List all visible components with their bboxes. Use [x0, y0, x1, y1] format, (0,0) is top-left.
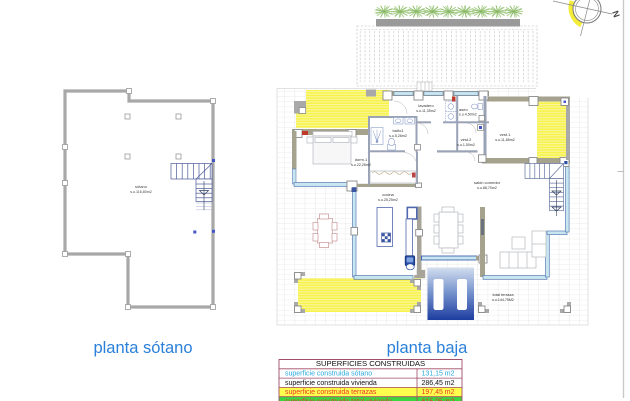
svg-text:superficie construida terrazas: superficie construida terrazas	[285, 389, 377, 396]
svg-text:total terraza: total terraza	[492, 292, 514, 297]
svg-text:s.u.1,50m2: s.u.1,50m2	[457, 143, 475, 147]
svg-text:baño1: baño1	[392, 128, 404, 133]
svg-text:s.u.4,50m2: s.u.4,50m2	[459, 113, 477, 117]
svg-text:planta sótano: planta sótano	[93, 339, 192, 357]
svg-text:sótano: sótano	[135, 184, 148, 189]
svg-text:197,45 m2: 197,45 m2	[421, 389, 454, 396]
svg-text:s.u.22,26m2: s.u.22,26m2	[351, 163, 371, 167]
svg-text:SUPERFICIES CONSTRUIDAS: SUPERFICIES CONSTRUIDAS	[316, 359, 425, 368]
svg-text:vest.1: vest.1	[500, 132, 511, 137]
svg-text:cocina: cocina	[382, 192, 394, 197]
svg-text:s.u.25,25m2: s.u.25,25m2	[378, 198, 398, 202]
svg-text:superficie construida vivienda: superficie construida vivienda	[285, 380, 377, 387]
svg-text:s.u.116,80m2: s.u.116,80m2	[130, 190, 152, 194]
svg-text:286,45 m2: 286,45 m2	[421, 380, 454, 387]
svg-text:planta baja: planta baja	[387, 339, 469, 357]
svg-text:aseo: aseo	[459, 107, 468, 112]
svg-text:131,15 m2: 131,15 m2	[421, 371, 454, 378]
svg-text:superficie construida sótano: superficie construida sótano	[285, 371, 372, 378]
svg-text:s.u.5,26m2: s.u.5,26m2	[389, 134, 407, 138]
svg-text:s.u.11,85m2: s.u.11,85m2	[495, 138, 515, 142]
svg-text:salón comedor: salón comedor	[474, 180, 501, 185]
svg-text:s.u.144,75M2: s.u.144,75M2	[492, 298, 514, 302]
svg-text:dorm.1: dorm.1	[355, 157, 368, 162]
svg-text:s.u.11,35m2: s.u.11,35m2	[416, 109, 436, 113]
svg-text:s.u.88,70m2: s.u.88,70m2	[477, 186, 497, 190]
svg-text:vest.2: vest.2	[461, 137, 472, 142]
svg-text:lavadero: lavadero	[418, 103, 434, 108]
